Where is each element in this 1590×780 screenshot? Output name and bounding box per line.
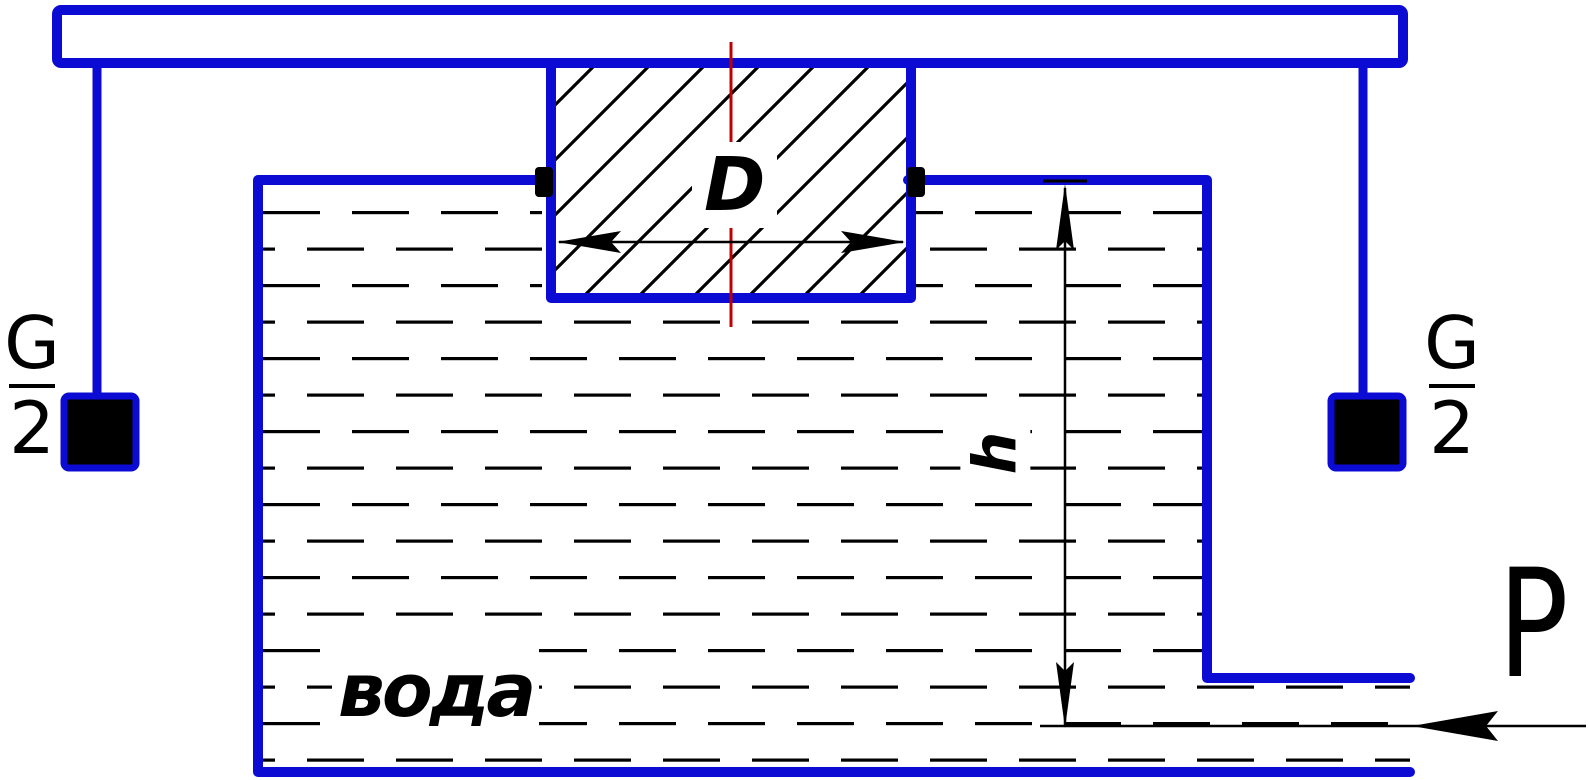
right-weight-denominator: 2 (1429, 393, 1475, 464)
pressure-label: P (1498, 550, 1569, 700)
diameter-label: D (692, 142, 777, 228)
right-weight-numerator: G (1424, 308, 1480, 379)
pressure-arrowhead (1412, 711, 1498, 741)
left-weight (64, 396, 136, 468)
diagram-canvas: G 2 G 2 D h вода P (0, 0, 1590, 780)
liquid-label: вода (332, 648, 539, 734)
left-weight-denominator: 2 (9, 393, 55, 464)
right-weight (1331, 396, 1403, 468)
diagram-linework (0, 0, 1590, 780)
height-label: h (960, 426, 1030, 481)
right-weight-label: G 2 (1422, 308, 1482, 463)
left-weight-numerator: G (4, 308, 60, 379)
left-stop-block (535, 167, 553, 197)
right-stop-block (907, 167, 925, 197)
left-weight-label: G 2 (2, 308, 62, 463)
